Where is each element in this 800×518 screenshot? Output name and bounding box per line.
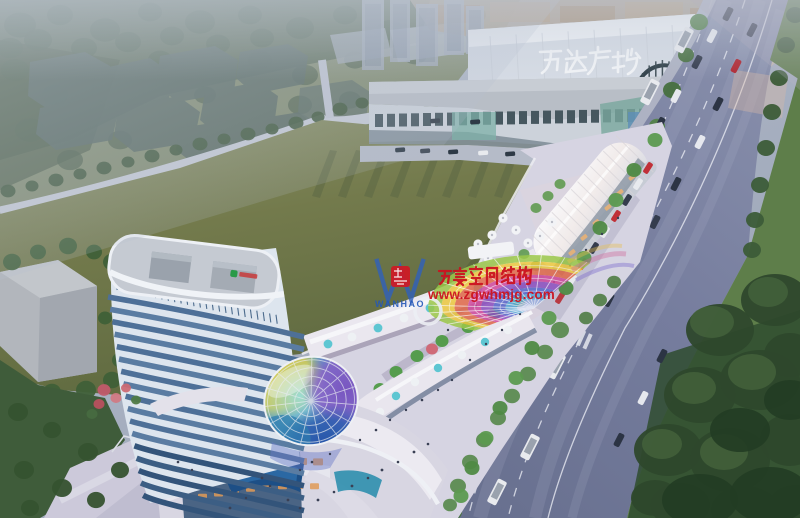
svg-text:www.zgwhmjg.com: www.zgwhmjg.com: [427, 287, 555, 302]
svg-text:WANHAO: WANHAO: [375, 299, 425, 309]
